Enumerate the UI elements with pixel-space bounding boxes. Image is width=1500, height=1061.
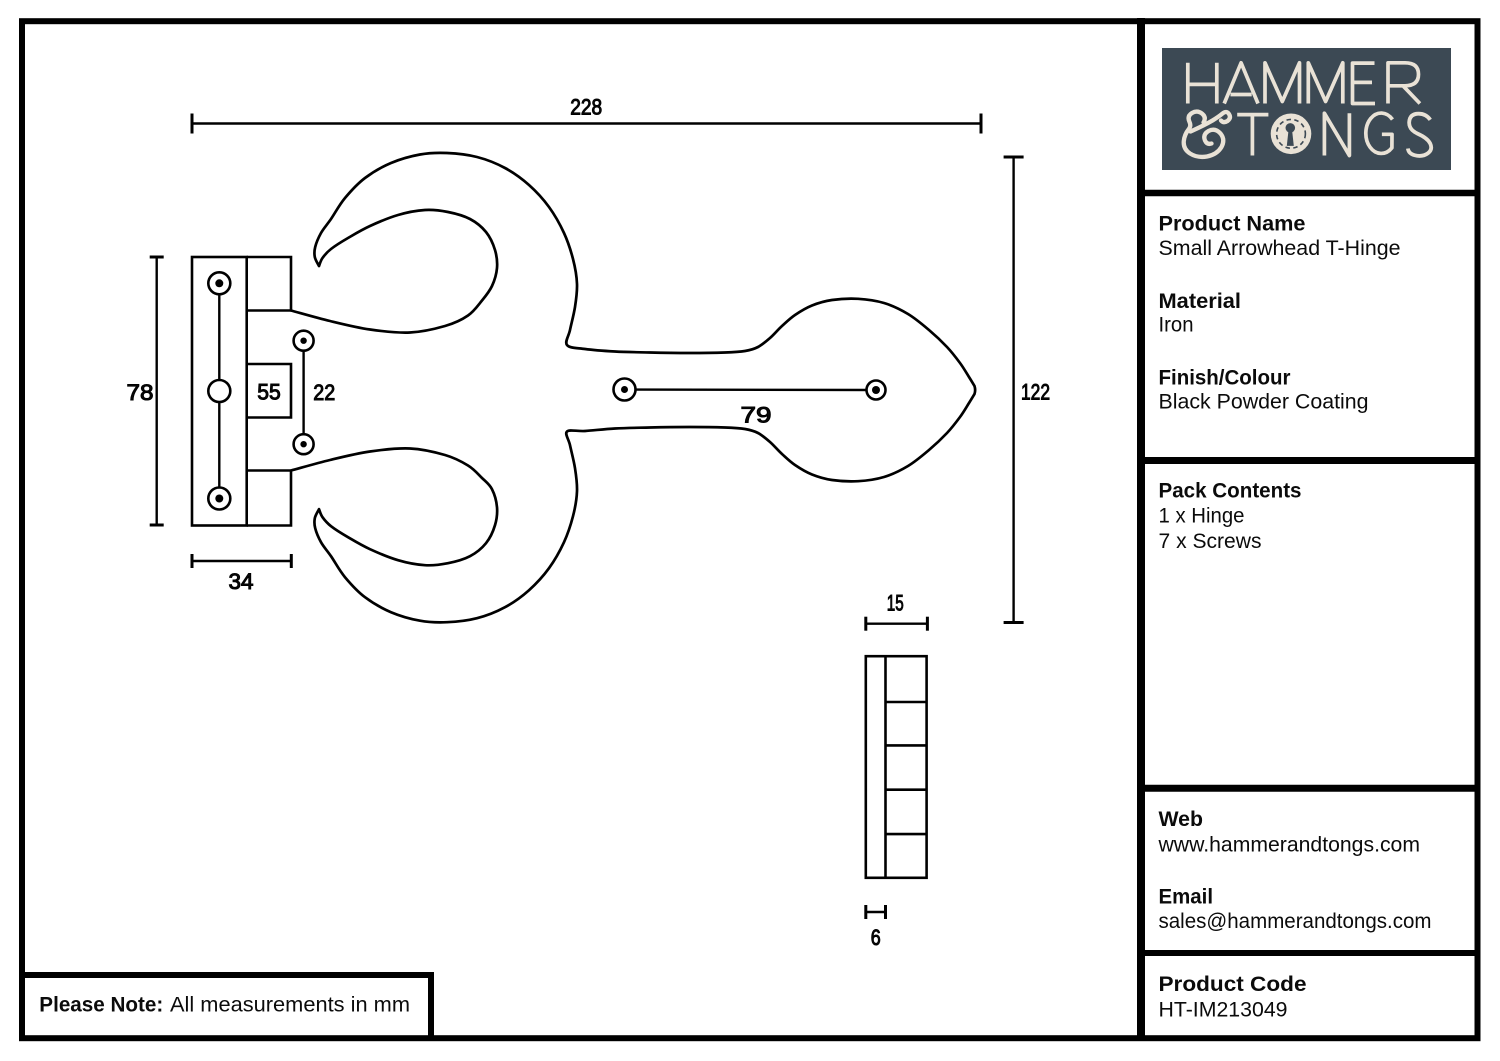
svg-text:HT-IM213049: HT-IM213049: [1159, 999, 1288, 1022]
svg-text:7 x Screws: 7 x Screws: [1159, 530, 1262, 553]
svg-text:Iron: Iron: [1159, 314, 1194, 337]
svg-text:Black Powder Coating: Black Powder Coating: [1159, 391, 1369, 414]
svg-text:Product Code: Product Code: [1159, 973, 1307, 996]
svg-text:All measurements in mm: All measurements in mm: [170, 994, 410, 1017]
svg-text:Web: Web: [1159, 808, 1204, 831]
svg-text:www.hammerandtongs.com: www.hammerandtongs.com: [1157, 834, 1420, 857]
svg-text:78: 78: [127, 380, 154, 405]
svg-text:79: 79: [741, 403, 772, 428]
svg-text:1 x Hinge: 1 x Hinge: [1159, 505, 1245, 528]
svg-text:Product Name: Product Name: [1159, 213, 1306, 236]
svg-text:34: 34: [229, 569, 254, 594]
svg-text:Please Note:: Please Note:: [39, 994, 163, 1017]
svg-text:Small Arrowhead T-Hinge: Small Arrowhead T-Hinge: [1159, 237, 1401, 260]
svg-text:Finish/Colour: Finish/Colour: [1159, 367, 1291, 390]
svg-text:Email: Email: [1159, 885, 1214, 908]
svg-text:6: 6: [871, 925, 881, 950]
svg-text:55: 55: [257, 380, 281, 405]
svg-text:Pack Contents: Pack Contents: [1159, 480, 1302, 503]
svg-text:15: 15: [887, 591, 904, 616]
svg-text:22: 22: [313, 380, 335, 405]
svg-text:Material: Material: [1159, 290, 1242, 313]
svg-text:122: 122: [1021, 380, 1050, 405]
svg-text:sales@hammerandtongs.com: sales@hammerandtongs.com: [1159, 910, 1432, 933]
svg-text:228: 228: [570, 95, 602, 120]
